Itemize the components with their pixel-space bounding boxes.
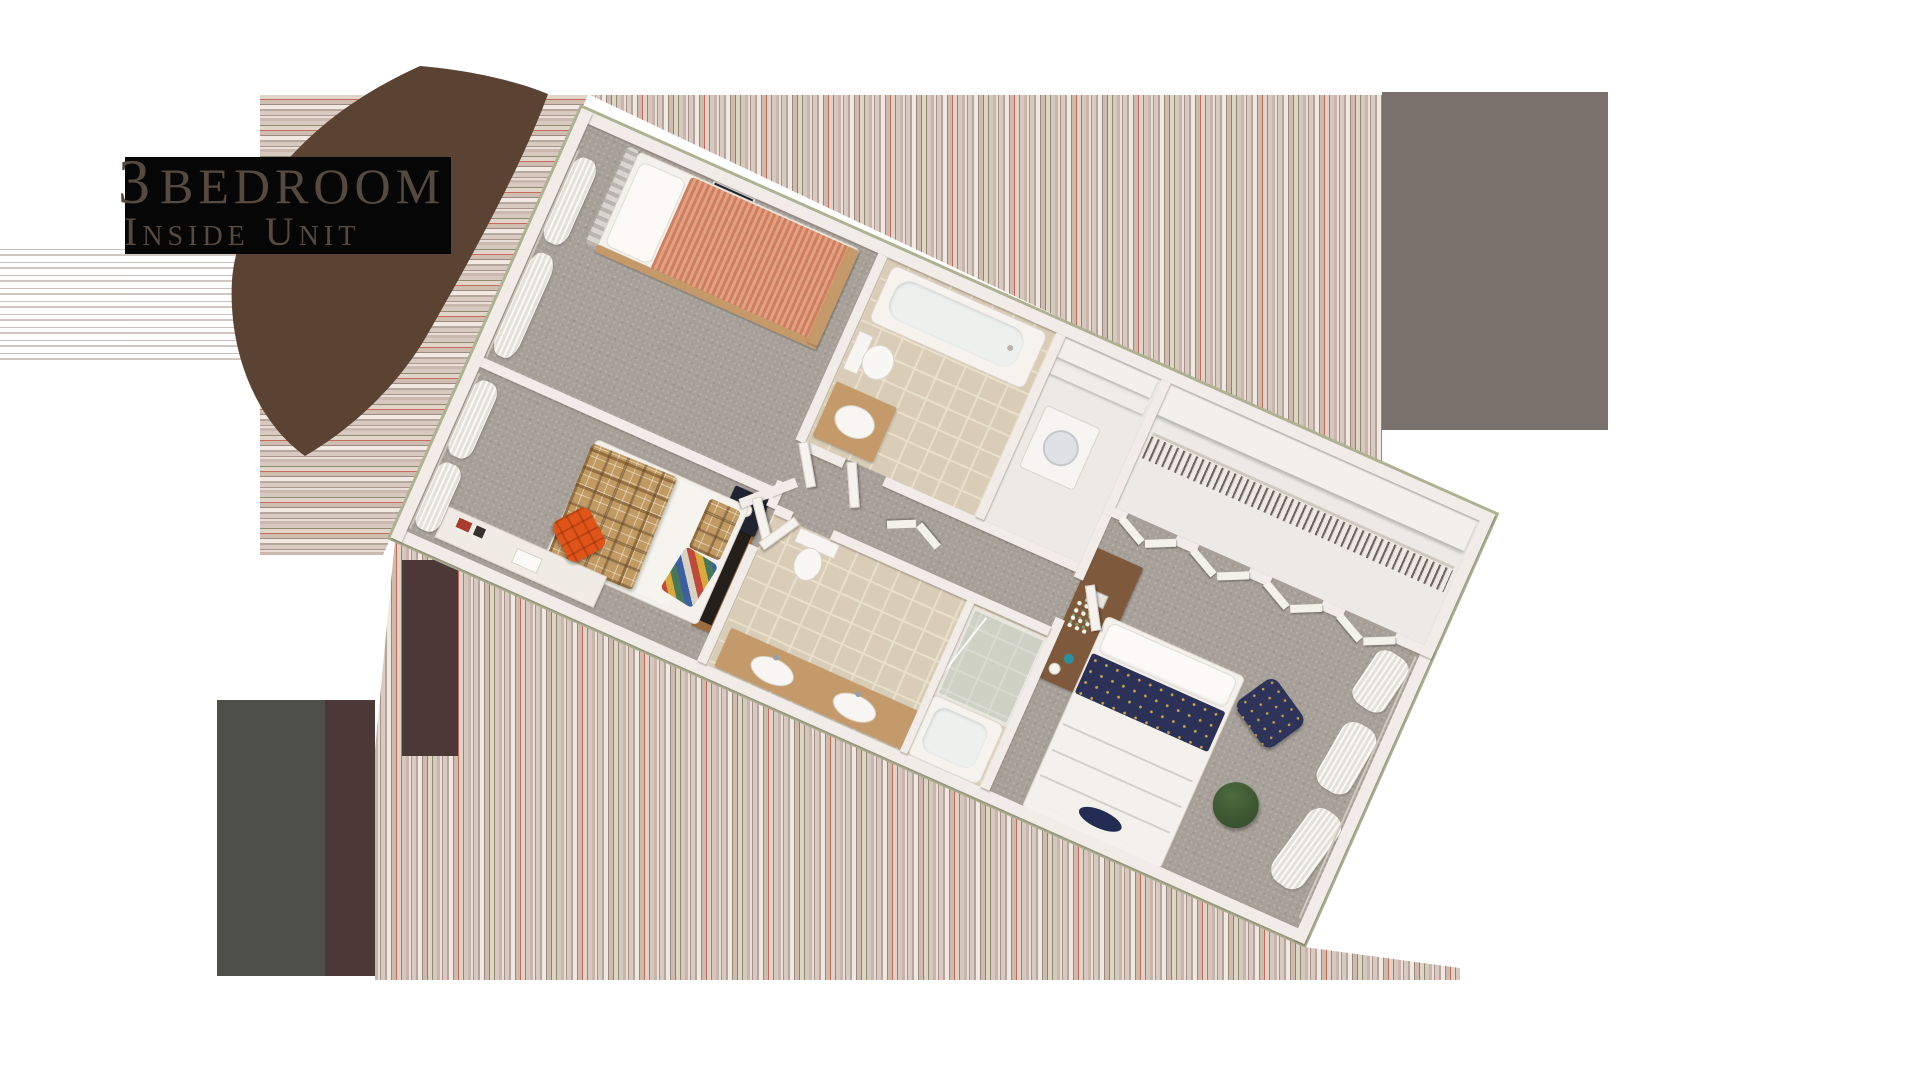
hall-closet-bifold (887, 508, 943, 549)
artifact-gray-block (1382, 92, 1608, 430)
title-number: 3 (118, 146, 150, 217)
page-subtitle: Inside Unit (124, 212, 360, 252)
master-plant (1205, 775, 1266, 836)
brown-swoosh-shape (232, 66, 548, 456)
artifact-maroon-block-west (402, 560, 458, 756)
artifact-olive-block (217, 700, 325, 976)
title-word: Bedroom (160, 158, 445, 214)
artifact-maroon-block (325, 700, 375, 976)
bathroom1-door (847, 462, 860, 509)
page-title: 3Bedroom (118, 150, 445, 214)
floorplan-marketing-image: 3Bedroom Inside Unit (0, 0, 1920, 1080)
master-armchair (1233, 675, 1308, 751)
brown-swoosh (210, 55, 570, 475)
